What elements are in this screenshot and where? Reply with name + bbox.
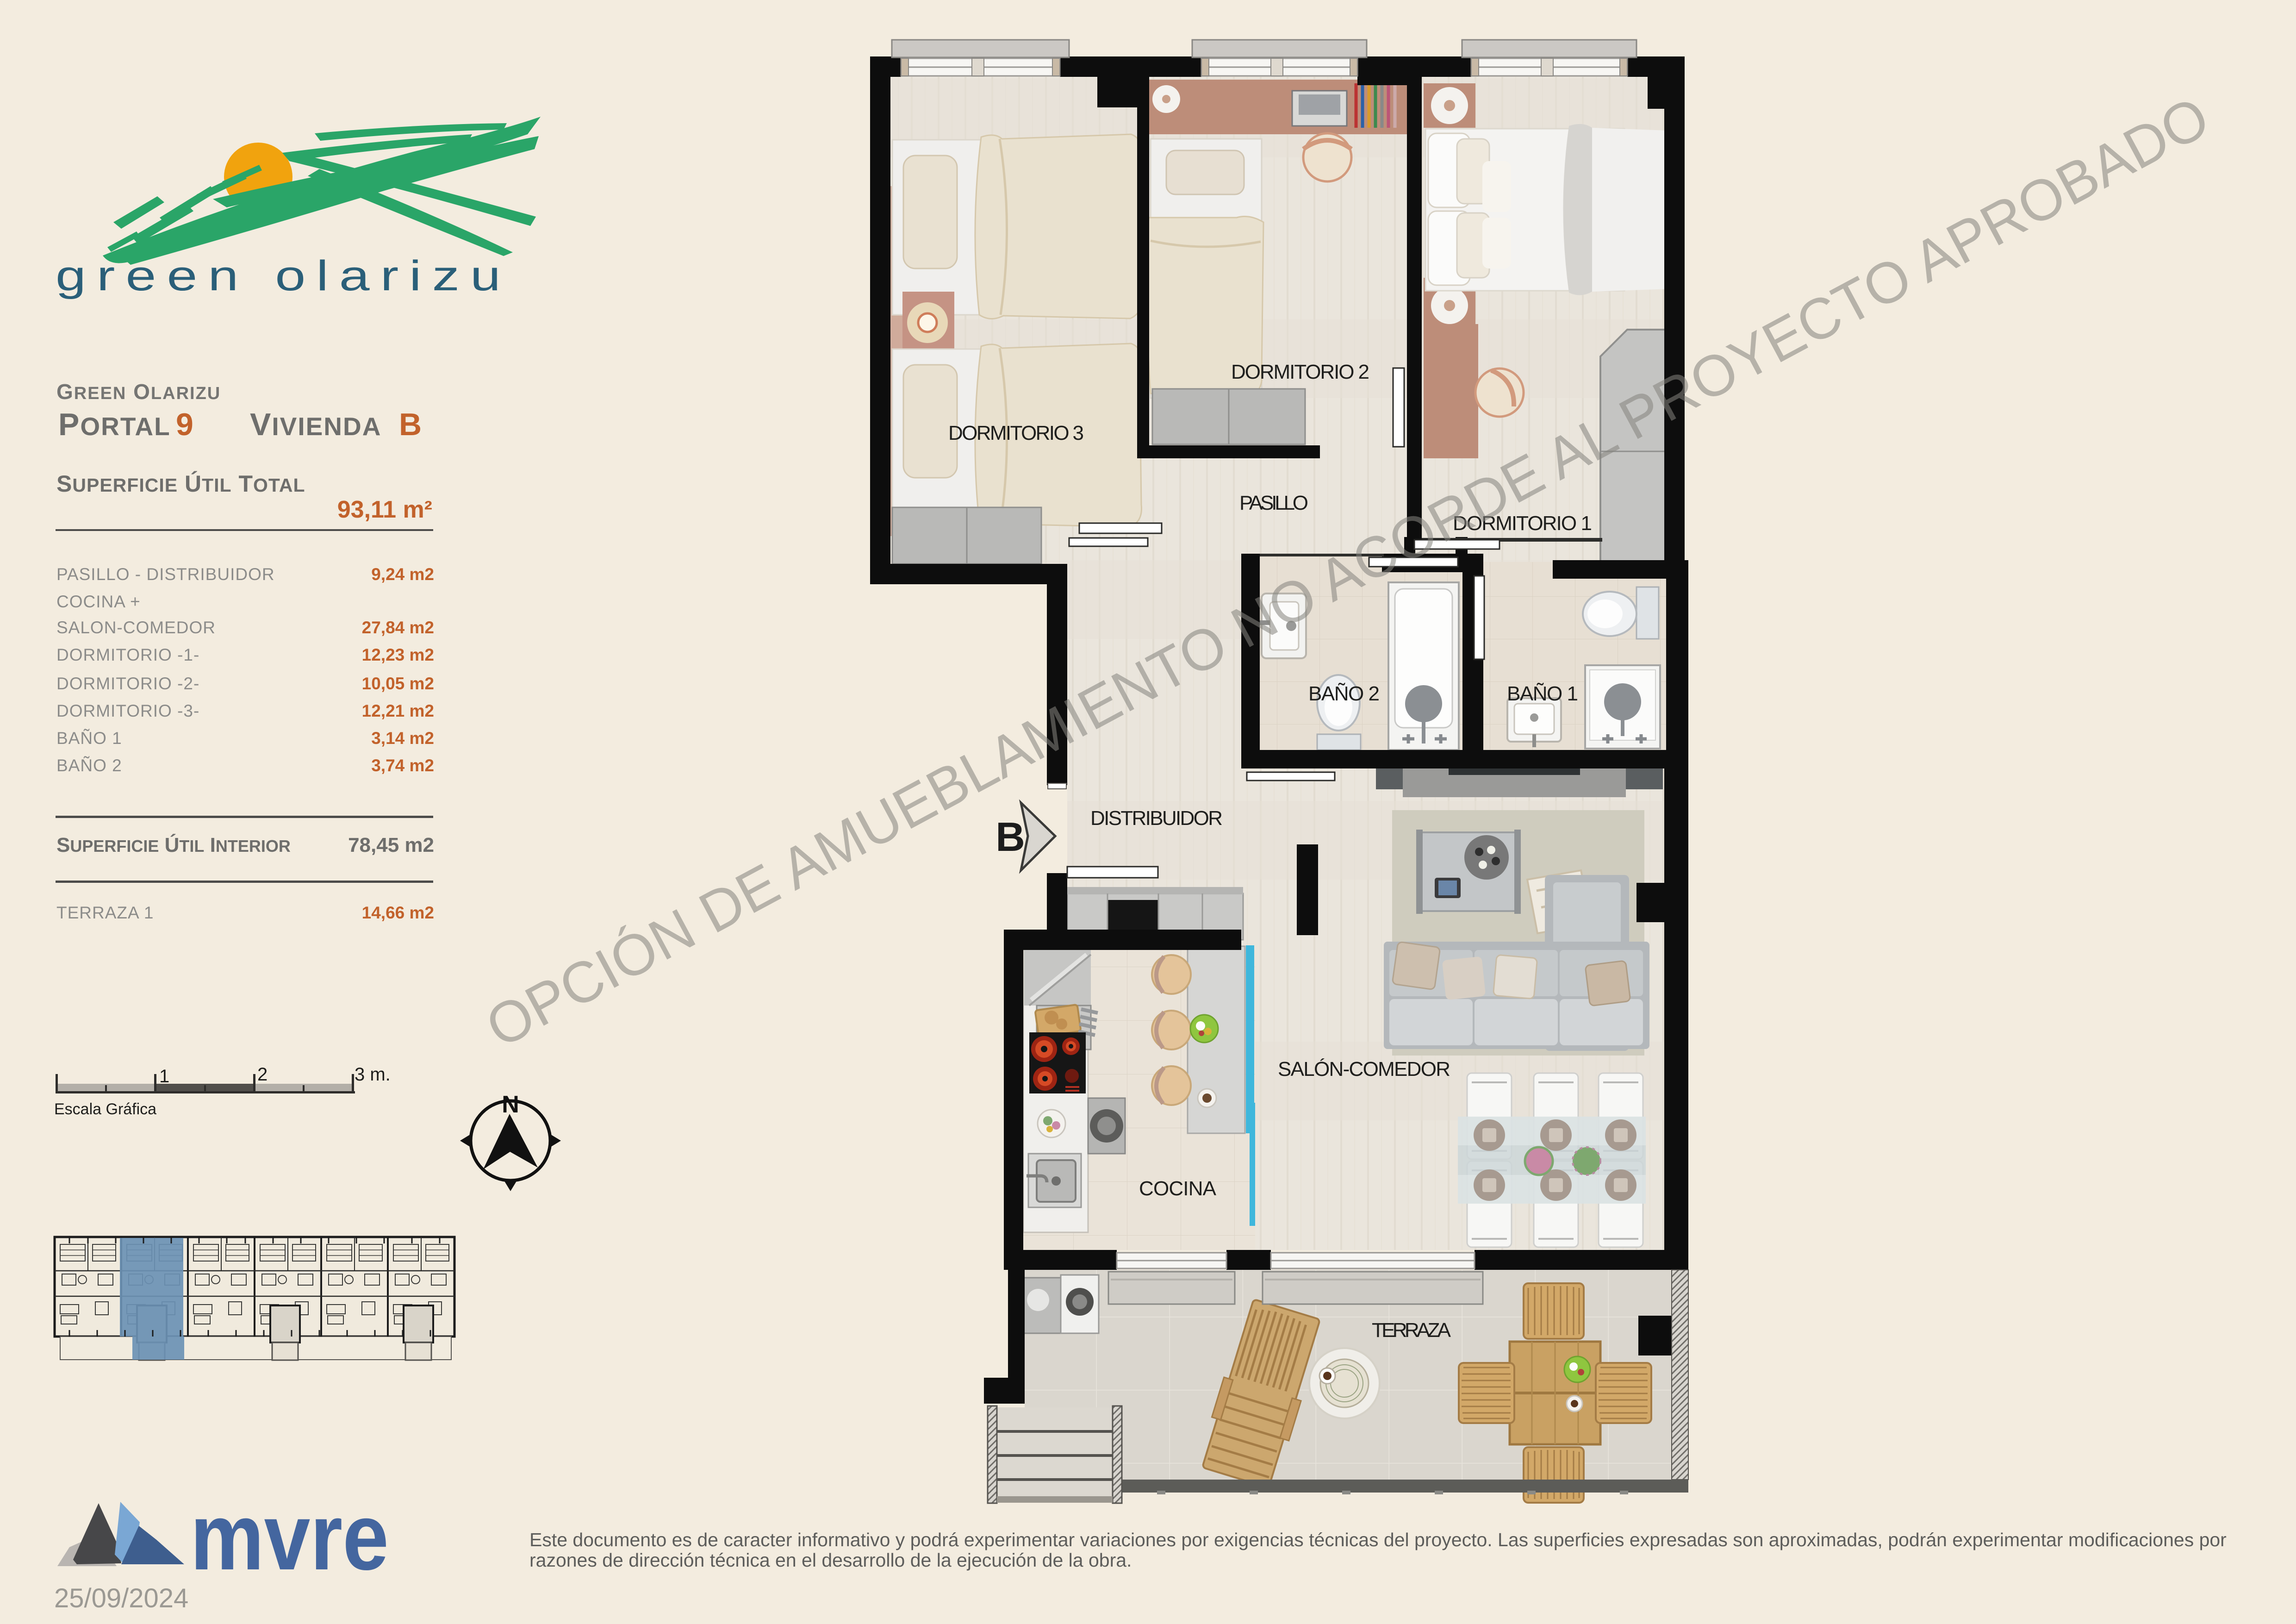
svg-text:BAÑO 1: BAÑO 1: [56, 729, 122, 748]
svg-text:DORMITORIO -3-: DORMITORIO -3-: [56, 701, 199, 720]
svg-text:TERRAZA 1: TERRAZA 1: [56, 903, 154, 922]
svg-text:9,24 m2: 9,24 m2: [371, 565, 434, 584]
svg-text:PORTAL: PORTAL: [58, 407, 171, 442]
svg-text:12,21 m2: 12,21 m2: [362, 701, 434, 720]
svg-text:green olarizu: green olarizu: [56, 252, 511, 300]
svg-text:SALÓN-COMEDOR: SALÓN-COMEDOR: [1278, 1058, 1450, 1081]
svg-text:razones de dirección técnica e: razones de dirección técnica en el desar…: [529, 1549, 1132, 1571]
svg-text:DORMITORIO -2-: DORMITORIO -2-: [56, 674, 199, 693]
svg-text:1: 1: [159, 1066, 169, 1087]
svg-text:27,84 m2: 27,84 m2: [362, 618, 434, 637]
svg-text:25/09/2024: 25/09/2024: [54, 1583, 188, 1613]
svg-text:14,66 m2: 14,66 m2: [362, 903, 434, 922]
svg-text:BAÑO 2: BAÑO 2: [1308, 682, 1380, 705]
svg-text:Escala Gráfica: Escala Gráfica: [54, 1100, 156, 1118]
svg-text:SALON-COMEDOR: SALON-COMEDOR: [56, 618, 216, 637]
svg-text:BAÑO 2: BAÑO 2: [56, 756, 122, 775]
svg-text:93,11 m²: 93,11 m²: [337, 496, 432, 523]
svg-text:SUPERFICIE ÚTIL TOTAL: SUPERFICIE ÚTIL TOTAL: [56, 471, 305, 497]
svg-text:DORMITORIO -1-: DORMITORIO -1-: [56, 645, 199, 664]
svg-text:TERRAZA: TERRAZA: [1372, 1319, 1451, 1342]
svg-text:N: N: [502, 1091, 519, 1118]
svg-text:B: B: [399, 407, 422, 442]
svg-text:COCINA: COCINA: [1139, 1177, 1217, 1200]
svg-text:DORMITORIO 2: DORMITORIO 2: [1231, 361, 1369, 383]
svg-text:DORMITORIO 3: DORMITORIO 3: [948, 422, 1084, 444]
svg-text:SUPERFICIE ÚTIL INTERIOR: SUPERFICIE ÚTIL INTERIOR: [56, 833, 291, 856]
svg-text:Este documento es de caracter: Este documento es de caracter informativ…: [529, 1529, 2227, 1550]
svg-text:PASILLO: PASILLO: [1239, 492, 1308, 514]
svg-text:12,23 m2: 12,23 m2: [362, 645, 434, 664]
svg-text:78,45 m2: 78,45 m2: [348, 834, 434, 856]
svg-text:3,14 m2: 3,14 m2: [371, 729, 434, 748]
svg-text:DISTRIBUIDOR: DISTRIBUIDOR: [1090, 807, 1223, 830]
svg-text:VIVIENDA: VIVIENDA: [250, 407, 381, 442]
svg-text:BAÑO 1: BAÑO 1: [1507, 682, 1578, 705]
svg-text:PASILLO - DISTRIBUIDOR: PASILLO - DISTRIBUIDOR: [56, 565, 275, 584]
svg-text:COCINA +: COCINA +: [56, 592, 141, 611]
svg-text:2: 2: [257, 1064, 268, 1085]
svg-text:9: 9: [176, 407, 193, 442]
svg-text:10,05 m2: 10,05 m2: [362, 674, 434, 693]
svg-text:B: B: [996, 814, 1025, 860]
svg-text:3 m.: 3 m.: [355, 1064, 391, 1085]
svg-text:mvre: mvre: [190, 1484, 389, 1590]
svg-text:3,74 m2: 3,74 m2: [371, 756, 434, 775]
